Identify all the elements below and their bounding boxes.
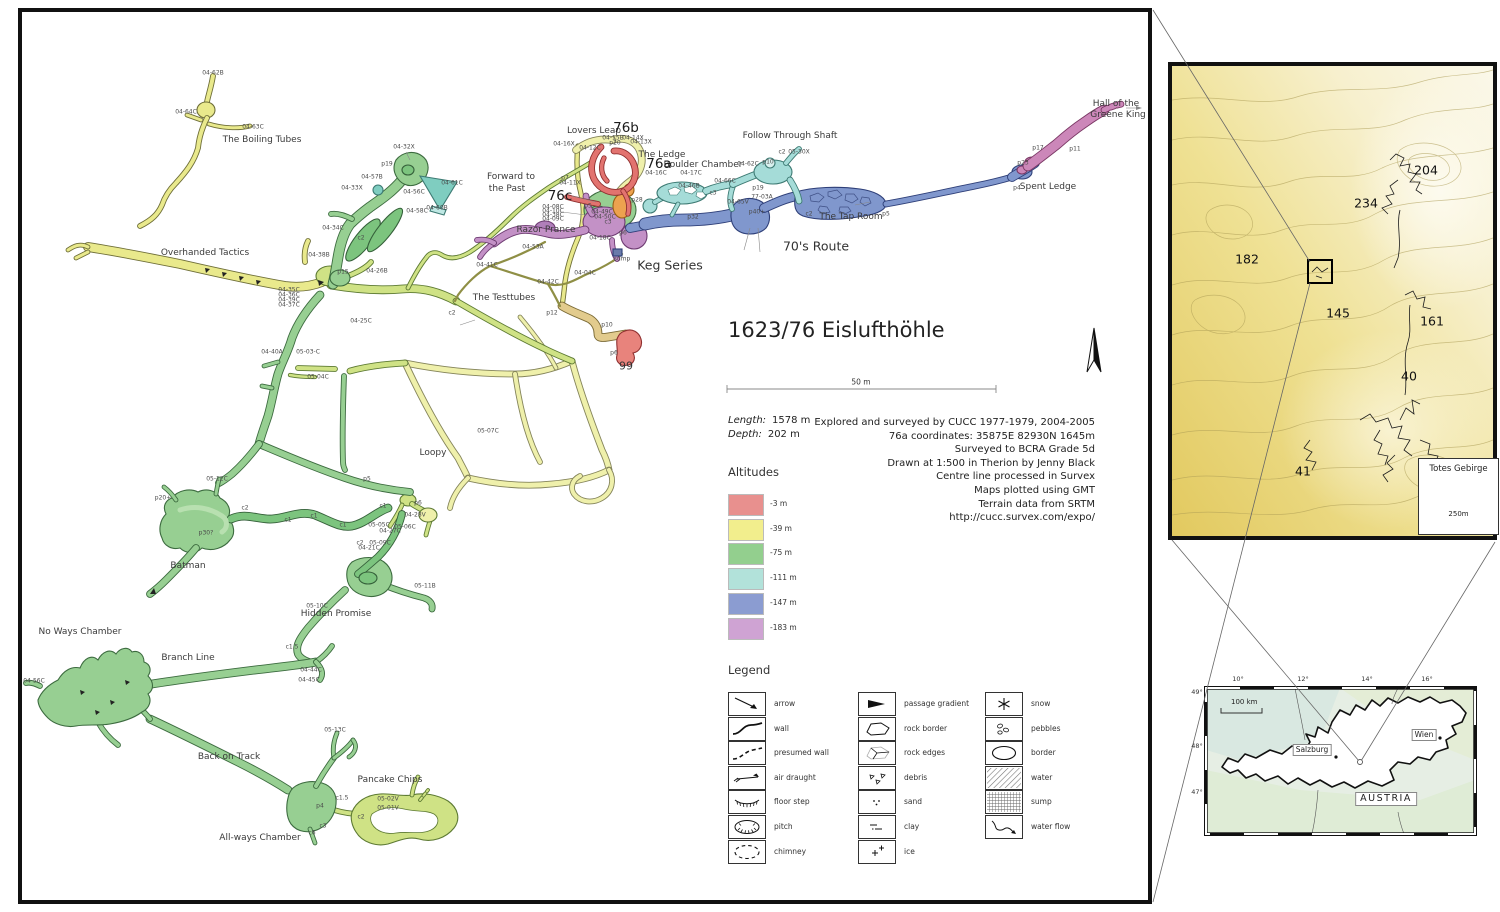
passage-name-label: Follow Through Shaft (743, 131, 838, 141)
station-label: 77-03A (751, 194, 773, 201)
passage-gradient-icon (858, 692, 896, 716)
topo-area-number: 161 (1420, 314, 1444, 329)
station-label: p40+ (749, 209, 765, 216)
cave-number-label: 99 (619, 360, 633, 373)
passage-name-label: Loopy (420, 448, 447, 458)
station-label: 04-09C (542, 216, 564, 223)
station-label: c2 (357, 814, 364, 821)
passage-name-label: Greene King (1090, 110, 1145, 120)
austria-place-label: Wien (1412, 729, 1437, 741)
station-label: 04-16C (645, 170, 667, 177)
station-label: 04-25C (350, 318, 372, 325)
topo-area-number: 145 (1326, 306, 1350, 321)
station-label: p6 (610, 350, 618, 357)
scale-bar-label: 50 m (851, 378, 870, 387)
credit-line: Terrain data from SRTM (795, 498, 1095, 512)
station-label: 04-56C (403, 189, 425, 196)
legend-label: arrow (774, 699, 795, 708)
debris-icon (858, 766, 896, 790)
rock-edges-icon (858, 741, 896, 765)
ice-icon (858, 840, 896, 864)
passage-name-label: Hidden Promise (301, 609, 372, 619)
passage-name-label: Spent Ledge (1020, 182, 1076, 192)
station-label: 04-26B (366, 268, 388, 275)
legend-label: snow (1031, 699, 1050, 708)
station-label: p5 (363, 476, 371, 483)
station-label: 04-12C (579, 145, 601, 152)
credit-line: Maps plotted using GMT (795, 484, 1095, 498)
passage-name-label: Back on Track (198, 752, 260, 762)
station-label: c1 (310, 513, 317, 520)
passage-name-label: The Testtubes (473, 293, 536, 303)
length-label: Length: (728, 415, 766, 426)
air-draught-icon (728, 766, 766, 790)
station-label: p11 (1069, 146, 1080, 153)
station-label: c1 (379, 503, 386, 510)
arrow-icon (728, 692, 766, 716)
station-label: 04-44C (300, 667, 322, 674)
station-label: 04-66C (714, 178, 736, 185)
passage-name-label: No Ways Chamber (38, 627, 121, 637)
station-label: 04-28V (404, 512, 426, 519)
station-label: c3 (709, 190, 716, 197)
totes-gebirge-box: Totes Gebirge 250m (1418, 458, 1499, 535)
legend-label: debris (904, 773, 927, 782)
legend-label: rock border (904, 724, 947, 733)
clay-icon (858, 815, 896, 839)
legend-label: clay (904, 822, 919, 831)
station-label: 04-63C (242, 124, 264, 131)
station-label: 04-53A (522, 244, 544, 251)
station-label: 04-45C (298, 677, 320, 684)
pebbles-icon (985, 717, 1023, 741)
altitude-swatch (728, 618, 764, 640)
topo-area-number: 182 (1235, 252, 1259, 267)
altitude-swatch (728, 593, 764, 615)
altitude-label: -3 m (770, 499, 787, 508)
station-label: 04-64C (175, 109, 197, 116)
station-label: 04-62C (737, 161, 759, 168)
altitudes-heading: Altitudes (728, 465, 779, 479)
austria-lon-tick: 10° (1232, 675, 1244, 683)
station-label: 04-38B (308, 252, 330, 259)
station-label: c1.5 (336, 795, 349, 802)
station-label: p30? (199, 530, 214, 537)
altitude-swatch (728, 519, 764, 541)
station-label: 05-07C (477, 428, 499, 435)
station-label: 04-33X (341, 185, 363, 192)
station-label: 04-18C (589, 235, 611, 242)
passage-name-label: Batman (170, 561, 205, 571)
legend-label: presumed wall (774, 748, 829, 757)
station-label: 04-62B (202, 70, 224, 77)
station-label: c2 (778, 149, 785, 156)
station-label: 04-13X (630, 139, 652, 146)
station-label: 05-30X (788, 149, 810, 156)
passage-name-label: Boulder Chamber (664, 160, 743, 170)
station-label: 04-58C (406, 208, 428, 215)
snow-icon (985, 692, 1023, 716)
station-label: 05-03-C (296, 349, 320, 356)
austria-lat-tick: 49° (1191, 688, 1203, 696)
station-label: 04-17C (680, 170, 702, 177)
station-label: sump (614, 256, 631, 263)
station-label: p28 (631, 197, 642, 204)
water-icon (985, 766, 1023, 790)
austria-place-label: Salzburg (1293, 744, 1332, 756)
legend-label: chimney (774, 847, 806, 856)
station-label: 05-02V (377, 796, 399, 803)
station-label: p19 (381, 161, 392, 168)
station-label: p10 (601, 322, 612, 329)
passage-name-label: the Past (489, 184, 525, 194)
station-label: c2 (241, 505, 248, 512)
credit-line: Explored and surveyed by CUCC 1977-1979,… (795, 416, 1095, 430)
station-label: p17 (1032, 145, 1043, 152)
passage-name-label: Pancake Chips (358, 775, 423, 785)
map-title: 1623/76 Eislufthöhle (728, 318, 945, 342)
station-label: 04-16X (553, 141, 575, 148)
passage-name-label: Hall of the (1093, 99, 1139, 109)
pitch-icon (728, 815, 766, 839)
floor-step-icon (728, 790, 766, 814)
station-label: 05-01V (377, 805, 399, 812)
austria-map (1205, 687, 1477, 836)
legend-label: sump (1031, 797, 1052, 806)
austria-lat-tick: 48° (1191, 742, 1203, 750)
station-label: p15 (337, 269, 348, 276)
station-label: p10 (762, 159, 773, 166)
station-label: 04-60B (426, 205, 448, 212)
sump-icon (985, 790, 1023, 814)
station-label: 05-11B (414, 583, 436, 590)
presumed-wall-icon (728, 741, 766, 765)
legend-label: passage gradient (904, 699, 969, 708)
station-label: c2 (357, 235, 364, 242)
station-label: 05-13C (324, 727, 346, 734)
wall-icon (728, 717, 766, 741)
legend-heading: Legend (728, 663, 770, 677)
legend-label: pebbles (1031, 724, 1061, 733)
passage-name-large-label: Keg Series (637, 258, 703, 273)
station-label: p4 (1013, 185, 1021, 192)
station-label: p19 (752, 185, 763, 192)
legend-label: wall (774, 724, 789, 733)
passage-name-large-label: 70's Route (783, 239, 849, 254)
credit-line: Centre line processed in Survex (795, 470, 1095, 484)
credit-line: Drawn at 1:500 in Therion by Jenny Black (795, 457, 1095, 471)
altitude-swatch (728, 568, 764, 590)
border-icon (985, 741, 1023, 765)
page: The Boiling TubesOverhanded TacticsForwa… (0, 0, 1500, 912)
topo-area-number: 204 (1414, 163, 1438, 178)
station-label: 04-56C (23, 678, 45, 685)
depth-label: Depth: (728, 429, 762, 440)
station-label: c1.5 (286, 644, 299, 651)
legend-label: pitch (774, 822, 793, 831)
passage-name-label: Branch Line (161, 653, 214, 663)
station-label: c3 (319, 823, 326, 830)
chimney-icon (728, 840, 766, 864)
austria-lon-tick: 14° (1361, 675, 1373, 683)
station-label: c1 (339, 522, 346, 529)
altitude-swatch (728, 543, 764, 565)
station-label: c6 (308, 830, 315, 837)
sand-icon (858, 790, 896, 814)
station-label: 04-40A (261, 349, 283, 356)
station-label: p12 (546, 310, 557, 317)
station-label: 04-46B (678, 183, 700, 190)
totes-gebirge-title: Totes Gebirge (1419, 464, 1498, 474)
station-label: p6 (414, 500, 422, 507)
altitude-label: -39 m (770, 524, 792, 533)
station-label: p5 (882, 211, 890, 218)
station-label: c3 (604, 219, 611, 226)
austria-scale-label: 100 km (1231, 698, 1257, 706)
station-label: p20 (609, 140, 620, 147)
legend-label: ice (904, 847, 915, 856)
station-label: 04-04C (574, 270, 596, 277)
credit-line: http://cucc.survex.com/expo/ (795, 511, 1095, 525)
entrance-label: 76c (548, 188, 573, 204)
station-label: 04-34C (322, 225, 344, 232)
altitude-swatch (728, 494, 764, 516)
legend-label: water flow (1031, 822, 1070, 831)
passage-name-label: Overhanded Tactics (161, 248, 249, 258)
cave-location-marker (1358, 760, 1363, 765)
passage-name-label: The Boiling Tubes (223, 135, 302, 145)
topo-area-number: 234 (1354, 196, 1378, 211)
station-label: 04-65V (727, 199, 749, 206)
credit-line: Surveyed to BCRA Grade 5d (795, 443, 1095, 457)
station-label: c2 (805, 211, 812, 218)
legend-label: sand (904, 797, 922, 806)
station-label: p23 (1017, 160, 1028, 167)
passage-name-label: The Tap Room (819, 212, 882, 222)
topo-scale-label: 250m (1419, 510, 1498, 518)
station-label: 04-41C (476, 262, 498, 269)
station-label: 04-11X (559, 180, 581, 187)
station-label: 04-57B (361, 174, 383, 181)
austria-lon-tick: 12° (1297, 675, 1309, 683)
station-label: 04-21C (358, 545, 380, 552)
station-label: 04-32X (393, 144, 415, 151)
station-label: c2 (448, 310, 455, 317)
austria-lon-tick: 16° (1421, 675, 1433, 683)
rock-border-icon (858, 717, 896, 741)
altitude-label: -75 m (770, 548, 792, 557)
station-label: 04-42C (537, 279, 559, 286)
passage-name-label: Razor Prance (516, 225, 575, 235)
topo-area-number: 40 (1401, 369, 1417, 384)
credit-line: 76a coordinates: 35875E 82930N 1645m (795, 430, 1095, 444)
station-label: 05-12C (206, 476, 228, 483)
station-label: p32 (687, 214, 698, 221)
station-label: p20+ (155, 495, 171, 502)
passage-name-label: All-ways Chamber (219, 833, 300, 843)
station-label: 05-04C (307, 374, 329, 381)
station-label: 04-27C (379, 528, 401, 535)
station-label: p4 (316, 803, 324, 810)
station-label: p6 (619, 230, 627, 237)
altitude-label: -147 m (770, 598, 797, 607)
water-flow-icon (985, 815, 1023, 839)
legend-label: water (1031, 773, 1052, 782)
legend-label: border (1031, 748, 1056, 757)
legend-label: rock edges (904, 748, 945, 757)
altitude-label: -111 m (770, 573, 797, 582)
topo-area-number: 41 (1295, 464, 1311, 479)
austria-place-label: AUSTRIA (1355, 792, 1417, 806)
passage-name-label: Forward to (487, 172, 535, 182)
station-label: 04-37C (278, 302, 300, 309)
station-label: c1 (284, 517, 291, 524)
legend-label: air draught (774, 773, 816, 782)
legend-label: floor step (774, 797, 810, 806)
station-label: 04-61C (441, 180, 463, 187)
austria-lat-tick: 47° (1191, 788, 1203, 796)
credits-block: Explored and surveyed by CUCC 1977-1979,… (795, 416, 1095, 525)
altitude-label: -183 m (770, 623, 797, 632)
station-label: 05-10C (306, 603, 328, 610)
